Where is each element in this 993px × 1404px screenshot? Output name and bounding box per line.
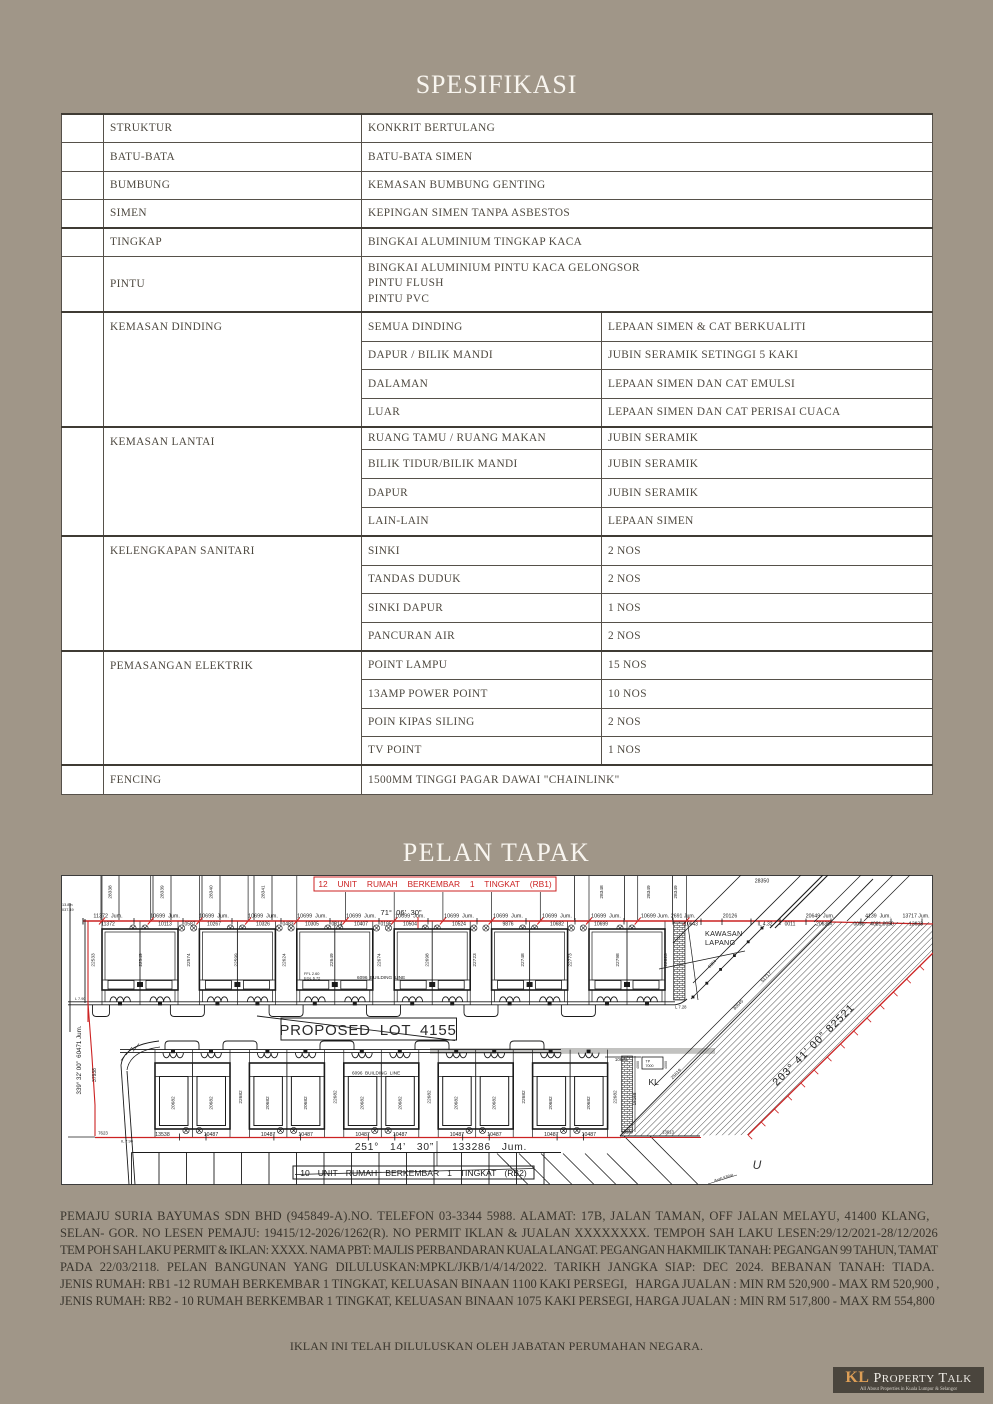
- svg-text:22798: 22798: [615, 953, 621, 967]
- svg-text:28340: 28340: [209, 885, 215, 899]
- svg-text:10326: 10326: [256, 922, 270, 928]
- svg-text:22748: 22748: [520, 953, 526, 967]
- svg-text:20682: 20682: [303, 1096, 309, 1110]
- svg-text:10699 Jum.: 10699 Jum.: [297, 914, 327, 920]
- svg-text:IL 7.90: IL 7.90: [121, 1139, 134, 1144]
- svg-text:20682: 20682: [548, 1096, 554, 1110]
- svg-text:20682: 20682: [397, 1096, 403, 1110]
- svg-text:22624: 22624: [281, 953, 287, 967]
- svg-text:7000: 7000: [646, 1064, 654, 1068]
- svg-text:22599: 22599: [234, 953, 240, 967]
- svg-text:10699 Jum.: 10699 Jum.: [444, 914, 474, 920]
- svg-text:22823: 22823: [663, 953, 669, 967]
- svg-text:12 UNIT RUMAH BERKEMBAR 1: 12 UNIT RUMAH BERKEMBAR 1 TINGKAT (RB1): [318, 879, 552, 889]
- svg-text:10305: 10305: [305, 922, 319, 928]
- svg-text:10699 Jum.: 10699 Jum.: [199, 914, 229, 920]
- svg-text:20682: 20682: [209, 1096, 215, 1110]
- svg-text:28349: 28349: [646, 885, 652, 899]
- svg-text:EGL 6.72: EGL 6.72: [304, 976, 320, 981]
- svg-text:10267: 10267: [207, 922, 221, 928]
- svg-text:4139 Jum.: 4139 Jum.: [865, 914, 891, 920]
- svg-text:6096 BUILDING LINE: 6096 BUILDING LINE: [357, 975, 405, 980]
- svg-text:037.49: 037.49: [62, 908, 74, 912]
- svg-text:28348: 28348: [599, 885, 605, 899]
- svg-text:20682: 20682: [492, 1096, 498, 1110]
- svg-text:20682: 20682: [359, 1096, 365, 1110]
- svg-text:10524: 10524: [452, 922, 466, 928]
- svg-text:10487: 10487: [298, 1132, 313, 1138]
- svg-text:10699 Jum.: 10699 Jum.: [493, 914, 523, 920]
- svg-text:20682: 20682: [454, 1096, 460, 1110]
- svg-text:22533: 22533: [91, 953, 97, 967]
- svg-text:28341: 28341: [261, 885, 267, 899]
- svg-text:22682: 22682: [613, 1090, 619, 1104]
- svg-text:22574: 22574: [186, 953, 192, 967]
- svg-text:6096 BUILDING LINE: 6096 BUILDING LINE: [352, 1071, 400, 1076]
- svg-text:0314: 0314: [331, 922, 342, 928]
- svg-text:22549: 22549: [138, 953, 144, 967]
- svg-text:22649: 22649: [329, 953, 335, 967]
- svg-text:11372 Jum.: 11372 Jum.: [93, 914, 122, 920]
- svg-text:KAWASAN: KAWASAN: [705, 929, 743, 938]
- svg-text:22674: 22674: [377, 953, 383, 967]
- svg-text:22698: 22698: [424, 953, 430, 967]
- svg-text:10699 Jum.: 10699 Jum.: [542, 914, 572, 920]
- svg-text:0483: 0483: [282, 922, 293, 928]
- svg-text:TP: TP: [646, 1060, 651, 1064]
- svg-text:37938: 37938: [92, 1068, 98, 1082]
- svg-text:20649 Jum.: 20649 Jum.: [806, 914, 835, 920]
- svg-text:10487: 10487: [487, 1132, 502, 1138]
- svg-text:28350: 28350: [755, 879, 770, 885]
- svg-text:L 7.28: L 7.28: [675, 1005, 687, 1010]
- svg-text:4000: 4000: [664, 1061, 668, 1069]
- svg-text:22723: 22723: [472, 953, 478, 967]
- svg-text:10487: 10487: [544, 1132, 559, 1138]
- svg-text:13130: 13130: [621, 1130, 633, 1135]
- svg-text:22682: 22682: [332, 1090, 338, 1104]
- svg-text:4000: 4000: [636, 1061, 640, 1069]
- svg-text:10504: 10504: [403, 922, 417, 928]
- svg-text:10699 Jum.: 10699 Jum.: [346, 914, 376, 920]
- svg-text:28338: 28338: [108, 885, 114, 899]
- svg-text:13538: 13538: [155, 1132, 170, 1138]
- svg-text:PROPOSED LOT 4155: PROPOSED LOT 4155: [279, 1022, 456, 1039]
- svg-text:13.8m: 13.8m: [62, 903, 73, 907]
- svg-text:2691 Jum.: 2691 Jum.: [671, 914, 695, 920]
- svg-text:L 7.90: L 7.90: [75, 997, 85, 1001]
- svg-text:22682: 22682: [238, 1090, 244, 1104]
- svg-text:10699 Jum.: 10699 Jum.: [641, 914, 669, 920]
- svg-text:20682: 20682: [265, 1096, 271, 1110]
- svg-text:10699 Jum.: 10699 Jum.: [248, 914, 278, 920]
- svg-text:0195: 0195: [380, 922, 391, 928]
- svg-text:22682: 22682: [427, 1090, 433, 1104]
- svg-text:10699: 10699: [594, 922, 608, 928]
- svg-text:10407: 10407: [354, 922, 368, 928]
- svg-text:9876: 9876: [502, 922, 513, 928]
- svg-text:10487: 10487: [450, 1132, 465, 1138]
- svg-text:0011: 0011: [785, 922, 796, 928]
- svg-text:10699 Jum.: 10699 Jum.: [591, 914, 621, 920]
- svg-text:10487: 10487: [582, 1132, 597, 1138]
- svg-text:20682: 20682: [171, 1096, 177, 1110]
- svg-text:11372: 11372: [101, 922, 115, 928]
- svg-text:71° 06’ 30”: 71° 06’ 30”: [380, 908, 422, 917]
- svg-text:7623: 7623: [98, 1131, 108, 1136]
- svg-text:LAPANG: LAPANG: [705, 938, 736, 947]
- svg-text:28339: 28339: [160, 885, 166, 899]
- svg-text:10487: 10487: [393, 1132, 408, 1138]
- svg-text:20682: 20682: [586, 1096, 592, 1110]
- svg-text:10487: 10487: [261, 1132, 276, 1138]
- svg-text:20126: 20126: [723, 914, 738, 920]
- svg-text:10487: 10487: [204, 1132, 219, 1138]
- svg-text:15168: 15168: [632, 1092, 637, 1105]
- svg-text:13717 Jum.: 13717 Jum.: [902, 914, 929, 920]
- svg-text:10113: 10113: [158, 922, 172, 928]
- svg-text:22773: 22773: [568, 953, 574, 967]
- svg-text:28349: 28349: [673, 885, 679, 899]
- svg-text:339° 32’ 00” 60471 Jum.: 339° 32’ 00” 60471 Jum.: [76, 1025, 83, 1094]
- svg-text:10699 Jum.: 10699 Jum.: [150, 914, 180, 920]
- svg-text:0587: 0587: [184, 922, 195, 928]
- svg-text:22682: 22682: [521, 1090, 527, 1104]
- svg-text:13613: 13613: [662, 1130, 674, 1135]
- svg-text:10487: 10487: [355, 1132, 370, 1138]
- svg-text:IL 4.32: IL 4.32: [757, 922, 772, 928]
- svg-text:10682: 10682: [550, 922, 564, 928]
- svg-text:U: U: [753, 1158, 762, 1172]
- svg-text:251° 14’ 30” 133286: 251° 14’ 30” 133286 Jum.: [355, 1142, 527, 1153]
